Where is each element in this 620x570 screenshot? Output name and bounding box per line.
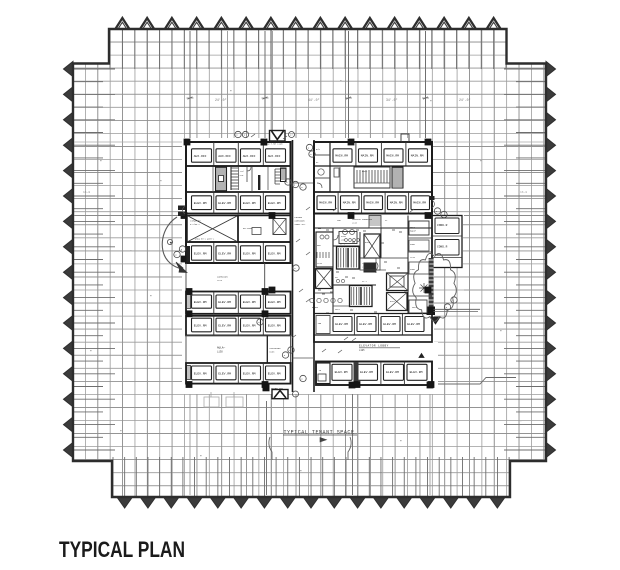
svg-text:AUX.OFF: AUX.OFF (243, 154, 256, 158)
svg-text:ELEV.RM: ELEV.RM (335, 322, 348, 326)
svg-text:ST·2: ST·2 (362, 280, 368, 283)
svg-text:W.T.RM L140: W.T.RM L140 (268, 142, 283, 145)
svg-text:MAIN.RM: MAIN.RM (390, 201, 403, 205)
svg-text:L105: L105 (359, 349, 365, 352)
svg-text:16-0: 16-0 (83, 191, 90, 194)
svg-text:COND: COND (410, 268, 416, 271)
svg-text:MAIN.RM: MAIN.RM (386, 154, 399, 158)
svg-text:ELEV.RM: ELEV.RM (243, 323, 256, 327)
svg-text:ST·1: ST·1 (340, 243, 346, 246)
svg-text:BUMP: BUMP (362, 170, 368, 173)
svg-text:ELEV.RM: ELEV.RM (268, 300, 281, 304)
svg-text:ELEV.RM: ELEV.RM (218, 371, 231, 375)
svg-text:MAIN.RM: MAIN.RM (361, 154, 374, 158)
svg-text:ELEV.RM: ELEV.RM (383, 322, 396, 326)
svg-text:WATER TRT: WATER TRT (271, 387, 284, 390)
svg-text:L130: L130 (217, 351, 223, 354)
svg-text:44′-0″: 44′-0″ (308, 98, 320, 102)
svg-text:24′-0″: 24′-0″ (215, 98, 227, 102)
svg-text:MAIN.RM: MAIN.RM (335, 154, 348, 158)
svg-text:AUX.OFF: AUX.OFF (194, 154, 207, 158)
svg-text:ELEV.RM: ELEV.RM (268, 201, 281, 205)
svg-text:AREA RM·1 AGYM·2: AREA RM·1 AGYM·2 (195, 238, 215, 241)
svg-text:ELEV.RM: ELEV.RM (194, 251, 207, 255)
svg-text:ELEV.RM: ELEV.RM (218, 300, 231, 304)
svg-text:ELEV.RM: ELEV.RM (359, 322, 372, 326)
svg-text:ELEV.RM: ELEV.RM (218, 201, 231, 205)
svg-text:ELEV.RM: ELEV.RM (194, 300, 207, 304)
svg-text:ELEV.RM: ELEV.RM (243, 251, 256, 255)
svg-text:O.T/RM 1: O.T/RM 1 (190, 223, 200, 226)
svg-text:L110: L110 (317, 262, 323, 265)
svg-text:L115: L115 (352, 222, 358, 225)
svg-text:B203: B203 (270, 351, 276, 354)
svg-text:TYPICAL TENANT SPACE: TYPICAL TENANT SPACE (284, 430, 355, 436)
svg-text:ELEV.RM: ELEV.RM (268, 323, 281, 327)
svg-text:MAIN.RM: MAIN.RM (413, 201, 426, 205)
svg-text:TYPICAL PLAN: TYPICAL PLAN (59, 537, 185, 562)
svg-text:24′-0″: 24′-0″ (459, 98, 471, 102)
svg-text:ELEV.RM: ELEV.RM (335, 370, 348, 374)
svg-text:ELEV.RM: ELEV.RM (268, 251, 281, 255)
svg-text:ELEV.RM: ELEV.RM (243, 371, 256, 375)
svg-text:ELEV.RM: ELEV.RM (218, 323, 231, 327)
svg-text:ELEV: ELEV (390, 300, 396, 303)
svg-text:ELEV.RM: ELEV.RM (268, 371, 281, 375)
svg-text:SHAFT W72: SHAFT W72 (295, 223, 307, 226)
svg-text:A/C: A/C (316, 148, 321, 151)
svg-text:ELEV.RM: ELEV.RM (194, 371, 207, 375)
svg-text:ELEV: ELEV (365, 241, 371, 244)
svg-text:L123: L123 (217, 279, 223, 282)
svg-text:MAIN.RM: MAIN.RM (319, 201, 332, 205)
svg-text:ELEV.RM: ELEV.RM (194, 323, 207, 327)
svg-text:75/: 75/ (240, 170, 245, 173)
svg-text:ELEVATOR LOBBY: ELEVATOR LOBBY (359, 345, 389, 348)
svg-text:ELEV.RM: ELEV.RM (407, 322, 420, 326)
svg-text:MAIN.RM: MAIN.RM (343, 201, 356, 205)
svg-text:COND: COND (410, 243, 416, 246)
svg-text:ELEV.RM: ELEV.RM (360, 370, 373, 374)
svg-text:MAIN.RM: MAIN.RM (411, 154, 424, 158)
svg-text:MAIN.RM: MAIN.RM (366, 201, 379, 205)
svg-text:VEST: VEST (335, 308, 341, 311)
svg-text:L128: L128 (238, 174, 244, 177)
svg-text:AUX.OFF: AUX.OFF (218, 154, 231, 158)
svg-text:L112: L112 (362, 266, 367, 269)
svg-text:ELEV.RM: ELEV.RM (243, 300, 256, 304)
svg-text:ELEV.RM: ELEV.RM (386, 370, 399, 374)
svg-text:AULA—: AULA— (217, 347, 225, 350)
svg-text:ELEV.RM: ELEV.RM (218, 251, 231, 255)
svg-text:L119: L119 (410, 256, 416, 259)
svg-text:ELEV.RM: ELEV.RM (194, 201, 207, 205)
svg-text:RM·1500: RM·1500 (243, 227, 253, 230)
svg-text:ELEV.RM: ELEV.RM (410, 370, 423, 374)
svg-text:34′-0″: 34′-0″ (386, 98, 398, 102)
svg-text:COND.R: COND.R (437, 246, 448, 249)
svg-text:COND.R: COND.R (437, 224, 448, 227)
svg-text:WOMEN: WOMEN (312, 306, 319, 309)
svg-text:16-0: 16-0 (520, 191, 527, 194)
svg-text:EQUIP: EQUIP (410, 230, 417, 233)
svg-text:AUX.OFF: AUX.OFF (268, 154, 281, 158)
svg-text:ELEV.RM: ELEV.RM (243, 201, 256, 205)
